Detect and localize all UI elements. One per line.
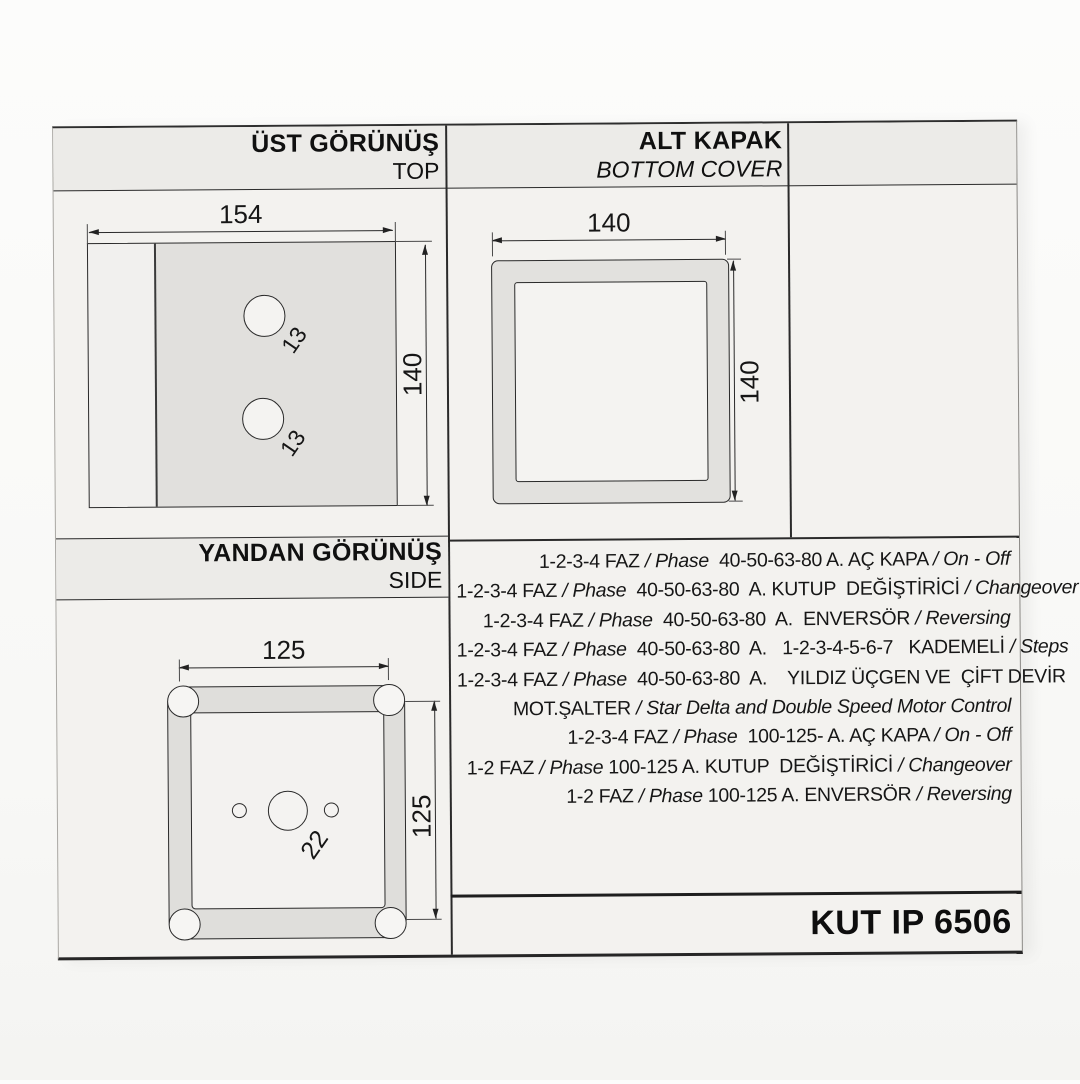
bottom-cover-width-dimline (492, 239, 726, 242)
extension-line (87, 224, 88, 244)
spec-segment-tr: 100-125 A. ENVERSÖR (703, 784, 917, 807)
side-view-width-dimline (179, 666, 389, 668)
top-view-height-label: 140 (397, 324, 429, 424)
spec-segment-en: / Changeover (965, 577, 1079, 600)
extension-line (395, 222, 396, 242)
spec-segment-en: / On - Off (934, 724, 1011, 747)
extension-line (179, 660, 180, 682)
spec-segment-tr: 1-2 FAZ (566, 786, 639, 809)
spec-segment-tr: 1-2-3-4 FAZ (483, 609, 589, 632)
spec-segment-en: / Phase (673, 726, 737, 748)
spec-segment-en: / Phase (645, 550, 709, 572)
right-column-divider (448, 536, 1019, 541)
top-view-hole-2 (242, 398, 284, 440)
spec-segment-tr: 1-2-3-4 FAZ (457, 639, 563, 662)
model-code: KUT IP 6506 (450, 894, 1011, 952)
spec-segment-en: / On - Off (933, 548, 1010, 571)
spec-line: 1-2-3-4 FAZ / Phase 40-50-63-80 A. YILDI… (457, 662, 1011, 695)
side-view-height-label: 125 (406, 766, 438, 866)
spec-line: 1-2 FAZ / Phase 100-125 A. KUTUP DEĞİŞTİ… (457, 751, 1011, 784)
spec-line: MOT.ŞALTER / Star Delta and Double Speed… (457, 692, 1011, 725)
spec-segment-en: / Steps (1010, 636, 1069, 658)
bottom-cover-width-label: 140 (559, 207, 659, 239)
spec-segment-tr: 100-125- A. AÇ KAPA (737, 725, 934, 748)
spec-segment-en: / Phase (563, 668, 627, 690)
spec-segment-tr: 40-50-63-80 A. YILDIZ ÜÇGEN VE ÇİFT DEVİ… (627, 665, 1066, 690)
side-view-small-hole (324, 802, 339, 817)
spec-segment-tr: 1-2 FAZ (467, 757, 540, 780)
spec-segment-tr: 1-2-3-4 FAZ (567, 727, 673, 750)
bottom-cover-title-en: BOTTOM COVER (445, 155, 782, 183)
extension-line (396, 241, 432, 242)
spec-segment-en: / Reversing (916, 783, 1011, 806)
spec-line: 1-2-3-4 FAZ / Phase 40-50-63-80 A. AÇ KA… (456, 545, 1010, 578)
spec-segment-tr: 40-50-63-80 A. KUTUP DEĞİŞTİRİCİ (626, 577, 965, 601)
spec-line: 1-2-3-4 FAZ / Phase 100-125- A. AÇ KAPA … (457, 721, 1011, 754)
spec-segment-en: / Phase (562, 580, 626, 602)
extension-line (388, 658, 389, 680)
spec-segment-tr: 100-125 A. KUTUP DEĞİŞTİRİCİ (603, 754, 898, 778)
spec-line: 1-2-3-4 FAZ / Phase 40-50-63-80 A. KUTUP… (456, 574, 1010, 607)
top-view-width-label: 154 (191, 199, 291, 231)
top-view-hole-1 (243, 295, 285, 337)
extension-line (729, 501, 743, 502)
side-view-small-hole (232, 803, 247, 818)
extension-line (398, 505, 434, 506)
spec-segment-tr: 40-50-63-80 A. AÇ KAPA (709, 548, 933, 572)
spec-segment-tr: 40-50-63-80 A. 1-2-3-4-5-6-7 KADEMELİ (627, 636, 1010, 661)
bottom-cover-title-tr: ALT KAPAK (445, 126, 782, 157)
spec-segment-tr: 1-2-3-4 FAZ (457, 668, 563, 691)
spec-segment-en: / Phase (539, 756, 603, 778)
extension-line (727, 259, 741, 260)
spec-segment-en: / Phase (639, 785, 703, 807)
top-view-title-en: TOP (53, 158, 439, 187)
extension-line (492, 232, 493, 256)
side-view-width-label: 125 (234, 634, 334, 666)
spec-segment-tr: 1-2-3-4 FAZ (539, 550, 645, 573)
side-view-header: YANDAN GÖRÜNÜŞ SIDE (56, 538, 442, 596)
side-view-corner-boss (375, 907, 407, 939)
spec-segment-en: / Reversing (915, 607, 1010, 630)
spec-segment-en: / Star Delta and Double Speed Motor Cont… (636, 695, 1011, 720)
extension-line (725, 231, 726, 255)
side-view-title-tr: YANDAN GÖRÜNÜŞ (56, 538, 442, 570)
side-view-title-en: SIDE (56, 567, 442, 596)
spec-line: 1-2-3-4 FAZ / Phase 40-50-63-80 A. ENVER… (456, 604, 1010, 637)
extension-line (407, 919, 442, 920)
spec-segment-tr: MOT.ŞALTER (513, 697, 636, 720)
spec-segment-en: / Phase (563, 639, 627, 661)
top-view-width-dimline (89, 230, 393, 233)
side-view-corner-boss (373, 684, 405, 716)
side-view-center-hole (268, 791, 308, 831)
content-frame: ÜST GÖRÜNÜŞ TOP ALT KAPAK BOTTOM COVER Y… (52, 120, 1023, 961)
side-view-corner-boss (169, 908, 201, 940)
bottom-cover-inner (514, 281, 708, 482)
side-view-corner-boss (167, 685, 199, 717)
catalog-sheet: ÜST GÖRÜNÜŞ TOP ALT KAPAK BOTTOM COVER Y… (0, 0, 1080, 1084)
spec-segment-tr: 1-2-3-4 FAZ (456, 580, 562, 603)
top-view-body (87, 241, 398, 508)
bottom-cover-height-label: 140 (734, 332, 766, 432)
spec-line: 1-2-3-4 FAZ / Phase 40-50-63-80 A. 1-2-3… (457, 633, 1011, 666)
bottom-cover-header: ALT KAPAK BOTTOM COVER (445, 126, 782, 183)
spec-line: 1-2 FAZ / Phase 100-125 A. ENVERSÖR / Re… (458, 780, 1012, 813)
spec-segment-en: / Phase (589, 609, 653, 631)
spec-segment-en: / Changeover (898, 754, 1012, 777)
spec-list: 1-2-3-4 FAZ / Phase 40-50-63-80 A. AÇ KA… (456, 545, 1012, 814)
spec-segment-tr: 40-50-63-80 A. ENVERSÖR (653, 607, 916, 631)
top-view-header: ÜST GÖRÜNÜŞ TOP (53, 129, 439, 187)
top-view-title-tr: ÜST GÖRÜNÜŞ (53, 129, 439, 161)
top-view-flange-line (154, 244, 157, 507)
